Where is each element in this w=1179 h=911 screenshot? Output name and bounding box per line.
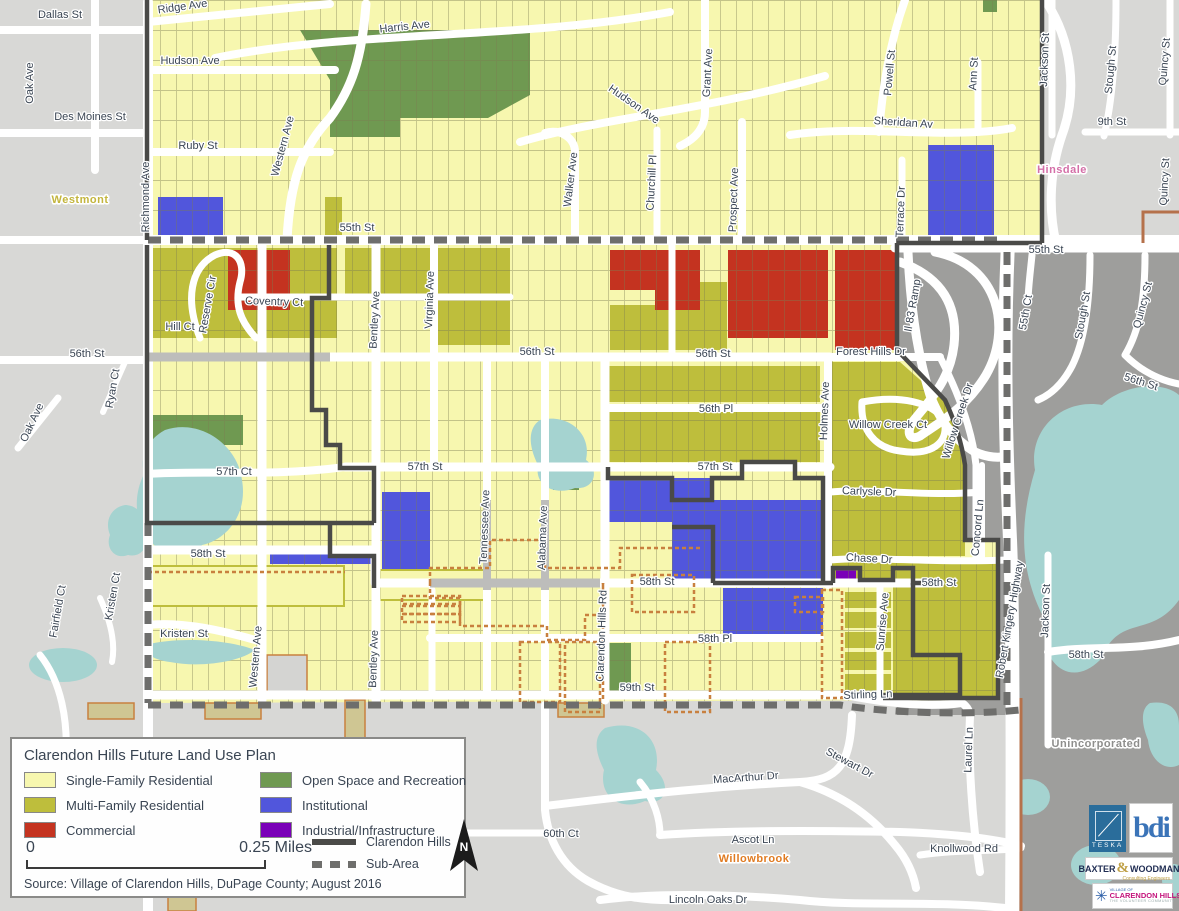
street-label: Lincoln Oaks Dr — [669, 894, 748, 906]
legend-title: Clarendon Hills Future Land Use Plan — [24, 747, 276, 764]
teska-logo: TESKA — [1089, 805, 1126, 852]
village-logo: ✳ VILLAGE OF CLARENDON HILLS THE VOLUNTE… — [1092, 883, 1173, 909]
village-motto-text: THE VOLUNTEER COMMUNITY — [1110, 900, 1179, 904]
street-label: 56th Pl — [699, 403, 733, 415]
street-label: 57th St — [698, 461, 733, 473]
land-use-map-page: Dallas StOak AveDes Moines StRidge AveHu… — [0, 0, 1179, 911]
street-label: Jackson St — [1038, 33, 1052, 87]
street-label: Oak Ave — [24, 62, 36, 103]
legend-column-2: Open Space and RecreationInstitutionalIn… — [260, 771, 466, 839]
baxter-text: BAXTER — [1079, 864, 1116, 874]
bdi-logo: bdi — [1129, 803, 1173, 853]
scale-start: 0 — [26, 839, 35, 857]
street-label: Stirling Ln — [843, 688, 892, 702]
place-label: Hinsdale — [1037, 164, 1087, 176]
street-label: 55th St — [1029, 244, 1064, 256]
legend-swatch — [24, 772, 56, 788]
street-label: Prospect Ave — [727, 167, 741, 232]
dashed-line-symbol — [312, 861, 356, 868]
street-label: 58th St — [1069, 649, 1104, 661]
legend-item: Single-Family Residential — [24, 771, 213, 789]
street-label: Willow Creek Ct — [849, 419, 927, 431]
street-label: 58th St — [191, 548, 226, 560]
street-label: 58th St — [640, 576, 675, 588]
street-label: Dallas St — [38, 9, 82, 21]
street-label: Holmes Ave — [818, 381, 832, 440]
legend-box: Clarendon Hills Future Land Use Plan Sin… — [10, 737, 466, 898]
legend-swatch — [24, 797, 56, 813]
legend-line-label: Sub-Area — [366, 857, 419, 871]
street-label: Laurel Ln — [962, 727, 976, 773]
source-note: Source: Village of Clarendon Hills, DuPa… — [24, 877, 382, 891]
legend-item: Institutional — [260, 796, 466, 814]
village-star-icon: ✳ — [1095, 887, 1108, 905]
legend-swatch — [24, 822, 56, 838]
legend-item: Multi-Family Residential — [24, 796, 213, 814]
street-label: Ascot Ln — [732, 834, 775, 846]
legend-item: Commercial — [24, 821, 213, 839]
teska-logo-mark — [1095, 811, 1122, 841]
solid-line-symbol — [312, 839, 356, 845]
street-label: 57th St — [408, 461, 443, 473]
teska-logo-text: TESKA — [1089, 842, 1126, 849]
street-label: 9th St — [1098, 116, 1127, 128]
legend-line-item: Clarendon Hills — [312, 835, 451, 849]
legend-line-symbols: Clarendon HillsSub-Area — [312, 835, 451, 871]
street-label: 56th St — [696, 348, 731, 360]
street-label: Kristen St — [160, 628, 208, 640]
legend-line-item: Sub-Area — [312, 857, 451, 871]
ampersand: & — [1117, 860, 1130, 877]
north-arrow: N — [448, 817, 480, 884]
legend-label: Commercial — [66, 823, 135, 838]
street-label: Ruby St — [178, 140, 217, 152]
legend-label: Open Space and Recreation — [302, 773, 466, 788]
street-label: Alabama Ave — [536, 505, 550, 570]
legend-swatch — [260, 772, 292, 788]
street-label: Hill Ct — [165, 321, 194, 333]
street-label: Jackson St — [1039, 584, 1053, 638]
woodman-text: WOODMAN — [1130, 864, 1179, 874]
place-label: Westmont — [52, 194, 109, 206]
legend-column-1: Single-Family ResidentialMulti-Family Re… — [24, 771, 213, 839]
legend-label: Multi-Family Residential — [66, 798, 204, 813]
scale-bar: 0 0.25 Miles — [26, 839, 266, 869]
baxter-woodman-logo: BAXTER & WOODMAN Consulting Engineers — [1085, 857, 1173, 880]
street-label: 55th St — [340, 222, 375, 234]
street-label: 60th Ct — [543, 828, 578, 840]
street-label: Quincy St — [1158, 158, 1172, 206]
scale-end: 0.25 Miles — [239, 839, 312, 857]
street-label: Knollwood Rd — [930, 843, 998, 855]
street-label: Ann St — [967, 57, 981, 91]
legend-item: Open Space and Recreation — [260, 771, 466, 789]
street-label: Coventry Ct — [245, 295, 303, 309]
street-label: Des Moines St — [54, 111, 126, 123]
legend-label: Institutional — [302, 798, 368, 813]
place-label: Unincorporated — [1052, 738, 1141, 750]
street-label: 56th St — [70, 348, 105, 360]
legend-swatch — [260, 797, 292, 813]
bdi-logo-text: bdi — [1133, 811, 1169, 845]
north-arrow-letter: N — [460, 840, 469, 854]
street-label: 58th Pl — [698, 633, 732, 645]
street-label: Hudson Ave — [160, 55, 219, 67]
street-label: Virginia Ave — [423, 271, 437, 329]
street-label: 57th Ct — [216, 466, 251, 478]
street-label: Richmond Ave — [140, 162, 152, 233]
street-label: Carlysle Dr — [842, 485, 897, 499]
street-label: Bentley Ave — [367, 630, 381, 688]
legend-label: Single-Family Residential — [66, 773, 213, 788]
street-label: 58th St — [922, 577, 957, 589]
street-label: Chase Dr — [846, 552, 893, 566]
street-label: Grant Ave — [701, 48, 716, 97]
legend-swatch — [260, 822, 292, 838]
scale-bar-line — [26, 860, 266, 869]
baxter-subtitle: Consulting Engineers — [1088, 876, 1170, 882]
street-label: Forest Hills Dr — [836, 346, 906, 358]
street-label: 56th St — [520, 346, 555, 358]
legend-line-label: Clarendon Hills — [366, 835, 451, 849]
street-label: 59th St — [620, 682, 655, 694]
place-label: Willowbrook — [719, 853, 790, 865]
street-label: Terrace Dr — [894, 186, 908, 238]
